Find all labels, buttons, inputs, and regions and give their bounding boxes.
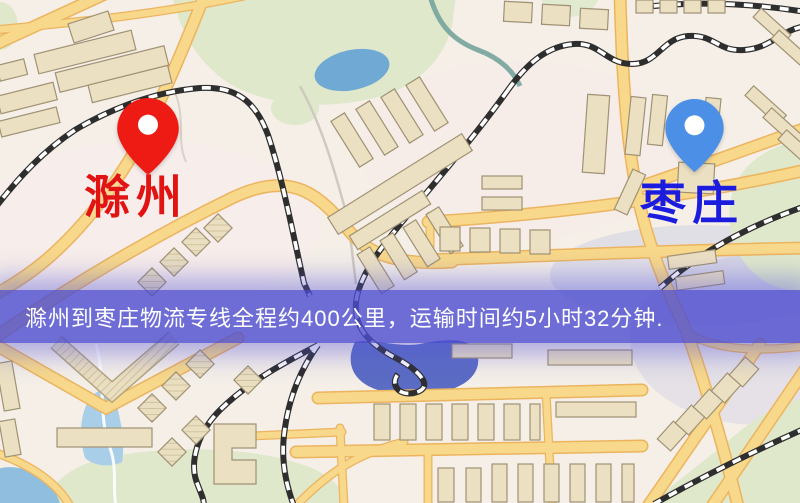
route-info-text: 滁州到枣庄物流专线全程约400公里，运输时间约5小时32分钟. [25, 301, 664, 333]
route-info-banner: 滁州到枣庄物流专线全程约400公里，运输时间约5小时32分钟. [0, 290, 800, 343]
red-map-pin-icon [117, 98, 179, 175]
origin-city-label: 滁州 [84, 174, 188, 220]
destination-pin[interactable] [665, 99, 724, 172]
blue-map-pin-icon [665, 99, 724, 172]
map-canvas[interactable]: 滁州 枣庄 滁州到枣庄物流专线全程约400公里，运输时间约5小时32分钟. [0, 0, 800, 503]
destination-city-label: 枣庄 [640, 180, 744, 226]
origin-pin[interactable] [117, 98, 179, 175]
map-artwork [0, 0, 800, 503]
